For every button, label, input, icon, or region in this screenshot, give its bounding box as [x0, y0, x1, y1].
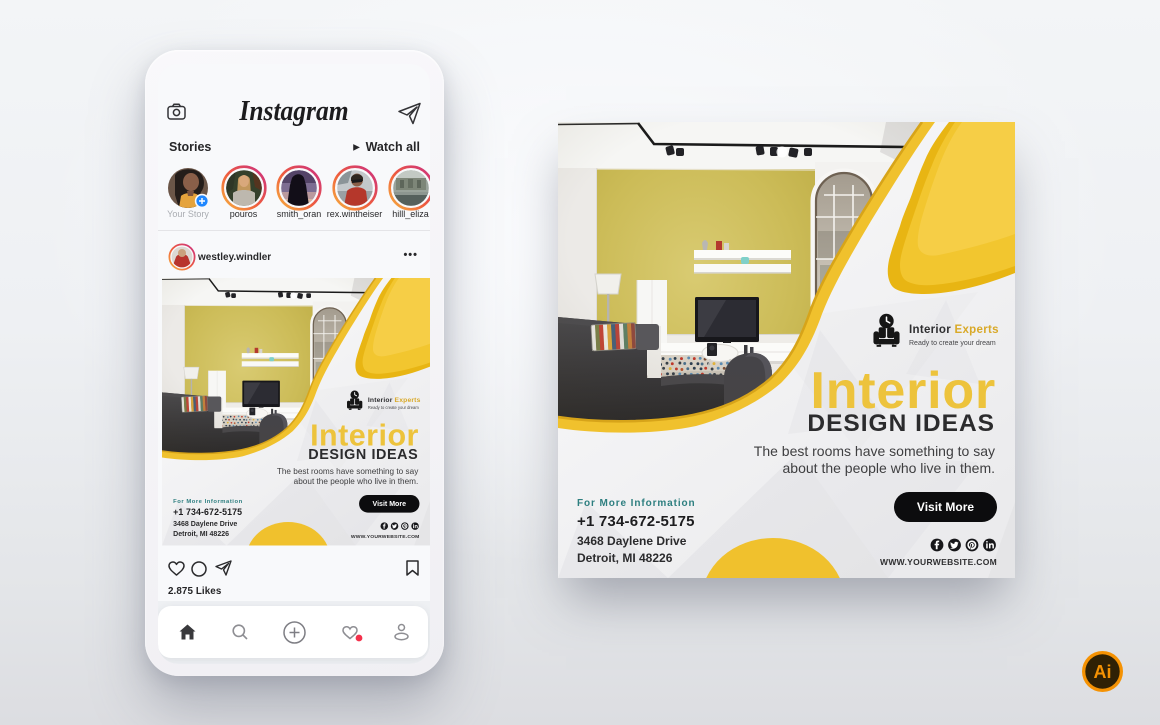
svg-text:Ai: Ai: [1094, 662, 1112, 682]
